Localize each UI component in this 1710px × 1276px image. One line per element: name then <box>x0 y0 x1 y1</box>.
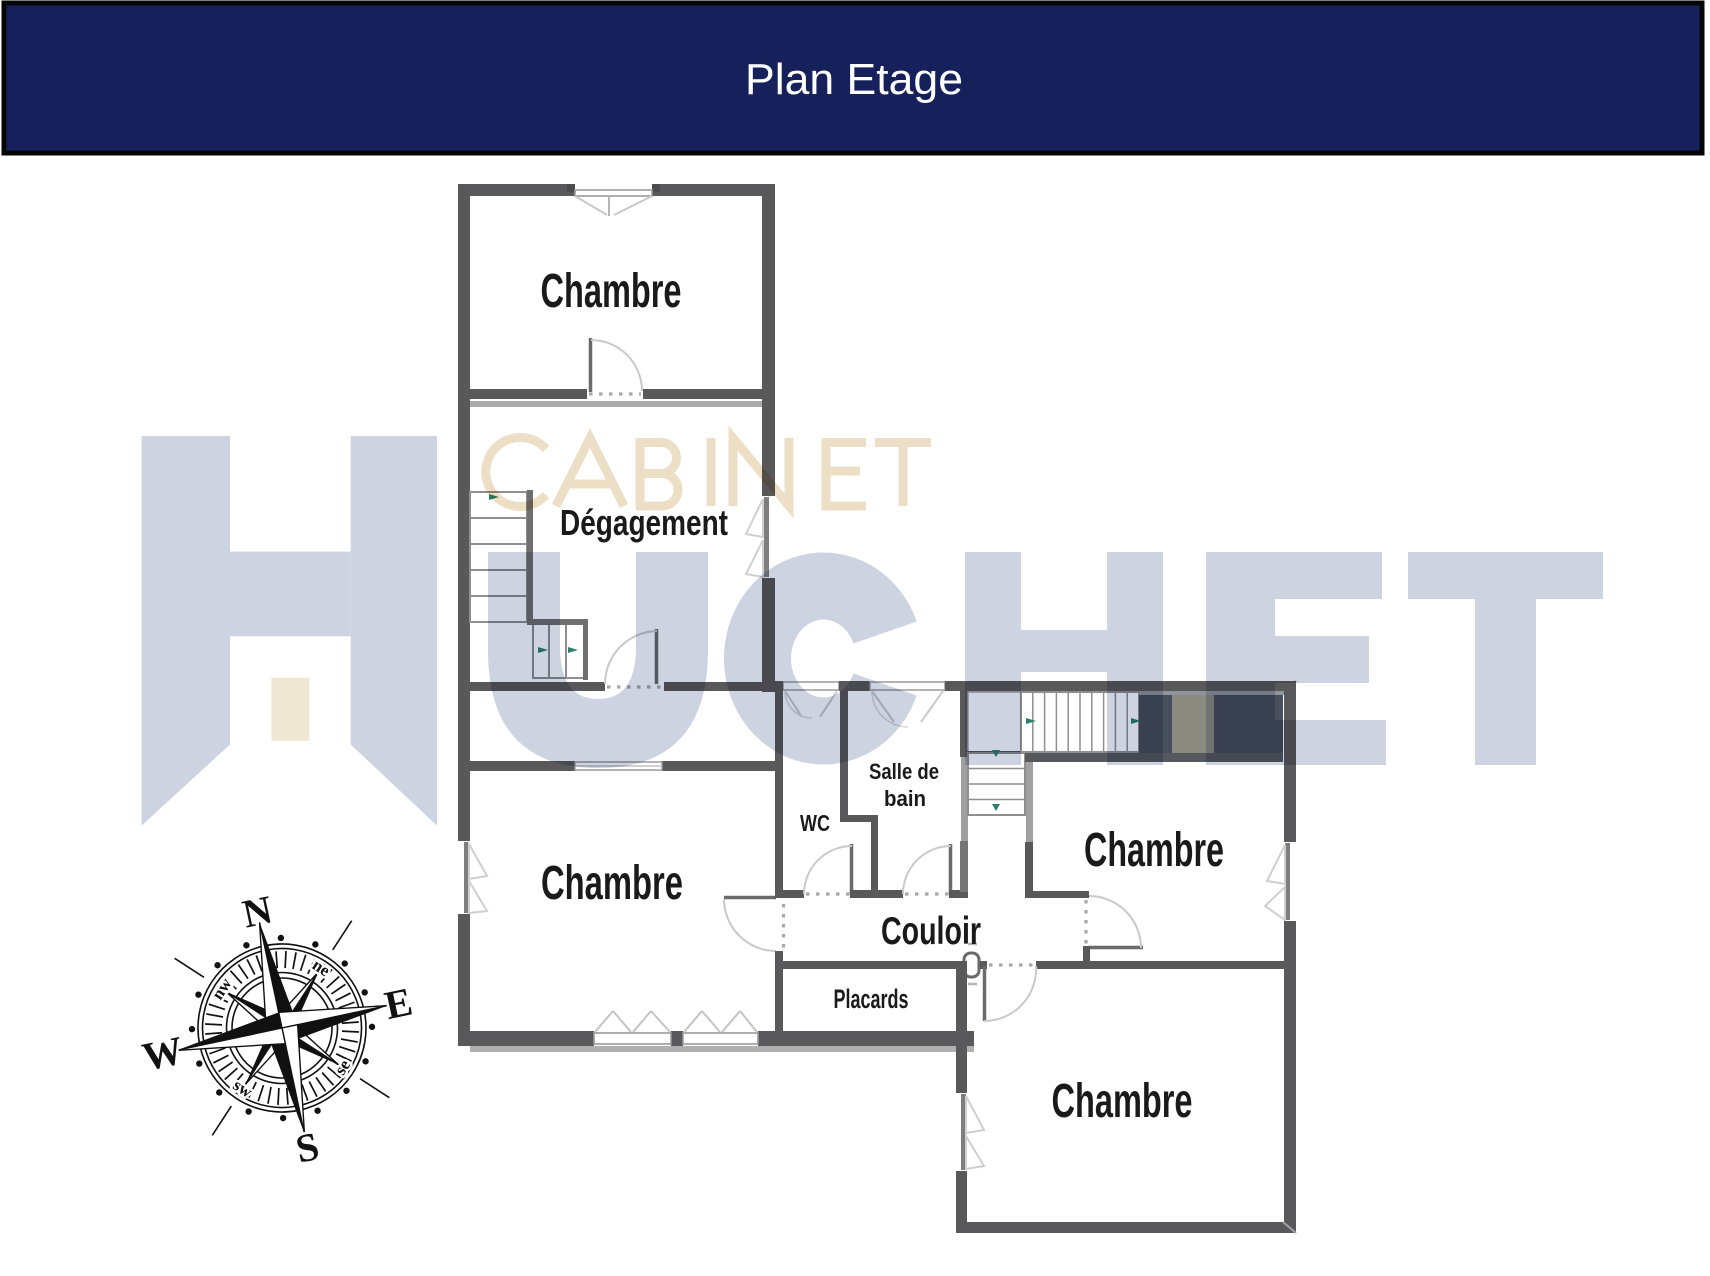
svg-text:Plan Etage: Plan Etage <box>745 55 963 104</box>
svg-text:Chambre: Chambre <box>541 265 682 318</box>
svg-text:Chambre: Chambre <box>541 857 683 910</box>
svg-text:WC: WC <box>800 810 830 836</box>
svg-text:Chambre: Chambre <box>1052 1075 1193 1128</box>
svg-text:Couloir: Couloir <box>881 910 981 953</box>
svg-text:Chambre: Chambre <box>1084 824 1224 877</box>
svg-text:bain: bain <box>884 786 926 811</box>
svg-text:Placards: Placards <box>834 984 909 1014</box>
svg-text:Salle de: Salle de <box>869 759 939 784</box>
